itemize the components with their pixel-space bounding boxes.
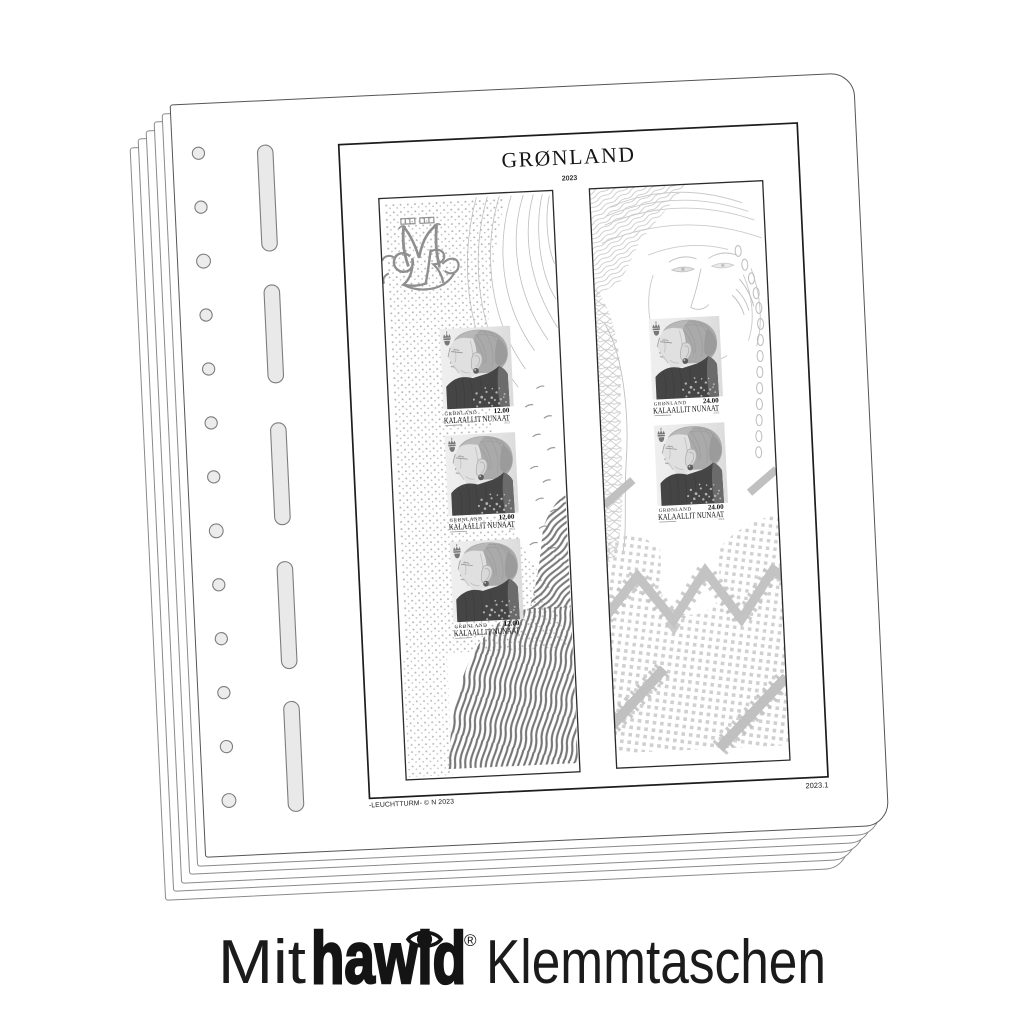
svg-text:2023: 2023 xyxy=(509,527,516,531)
svg-text:Klemmtaschen: Klemmtaschen xyxy=(486,927,826,997)
svg-text:hawid: hawid xyxy=(311,918,466,999)
svg-text:2023.1: 2023.1 xyxy=(805,780,828,790)
svg-text:Mit: Mit xyxy=(218,927,306,997)
svg-text:2023: 2023 xyxy=(504,420,511,424)
svg-text:2023: 2023 xyxy=(562,175,578,183)
svg-text:-LEUCHTTURM- © N 2023: -LEUCHTTURM- © N 2023 xyxy=(369,797,455,809)
svg-text:2023: 2023 xyxy=(713,410,720,414)
svg-text:®: ® xyxy=(464,931,477,950)
svg-text:GRØNLAND: GRØNLAND xyxy=(501,142,636,172)
svg-text:2023: 2023 xyxy=(718,517,725,521)
svg-text:2023: 2023 xyxy=(514,633,521,637)
